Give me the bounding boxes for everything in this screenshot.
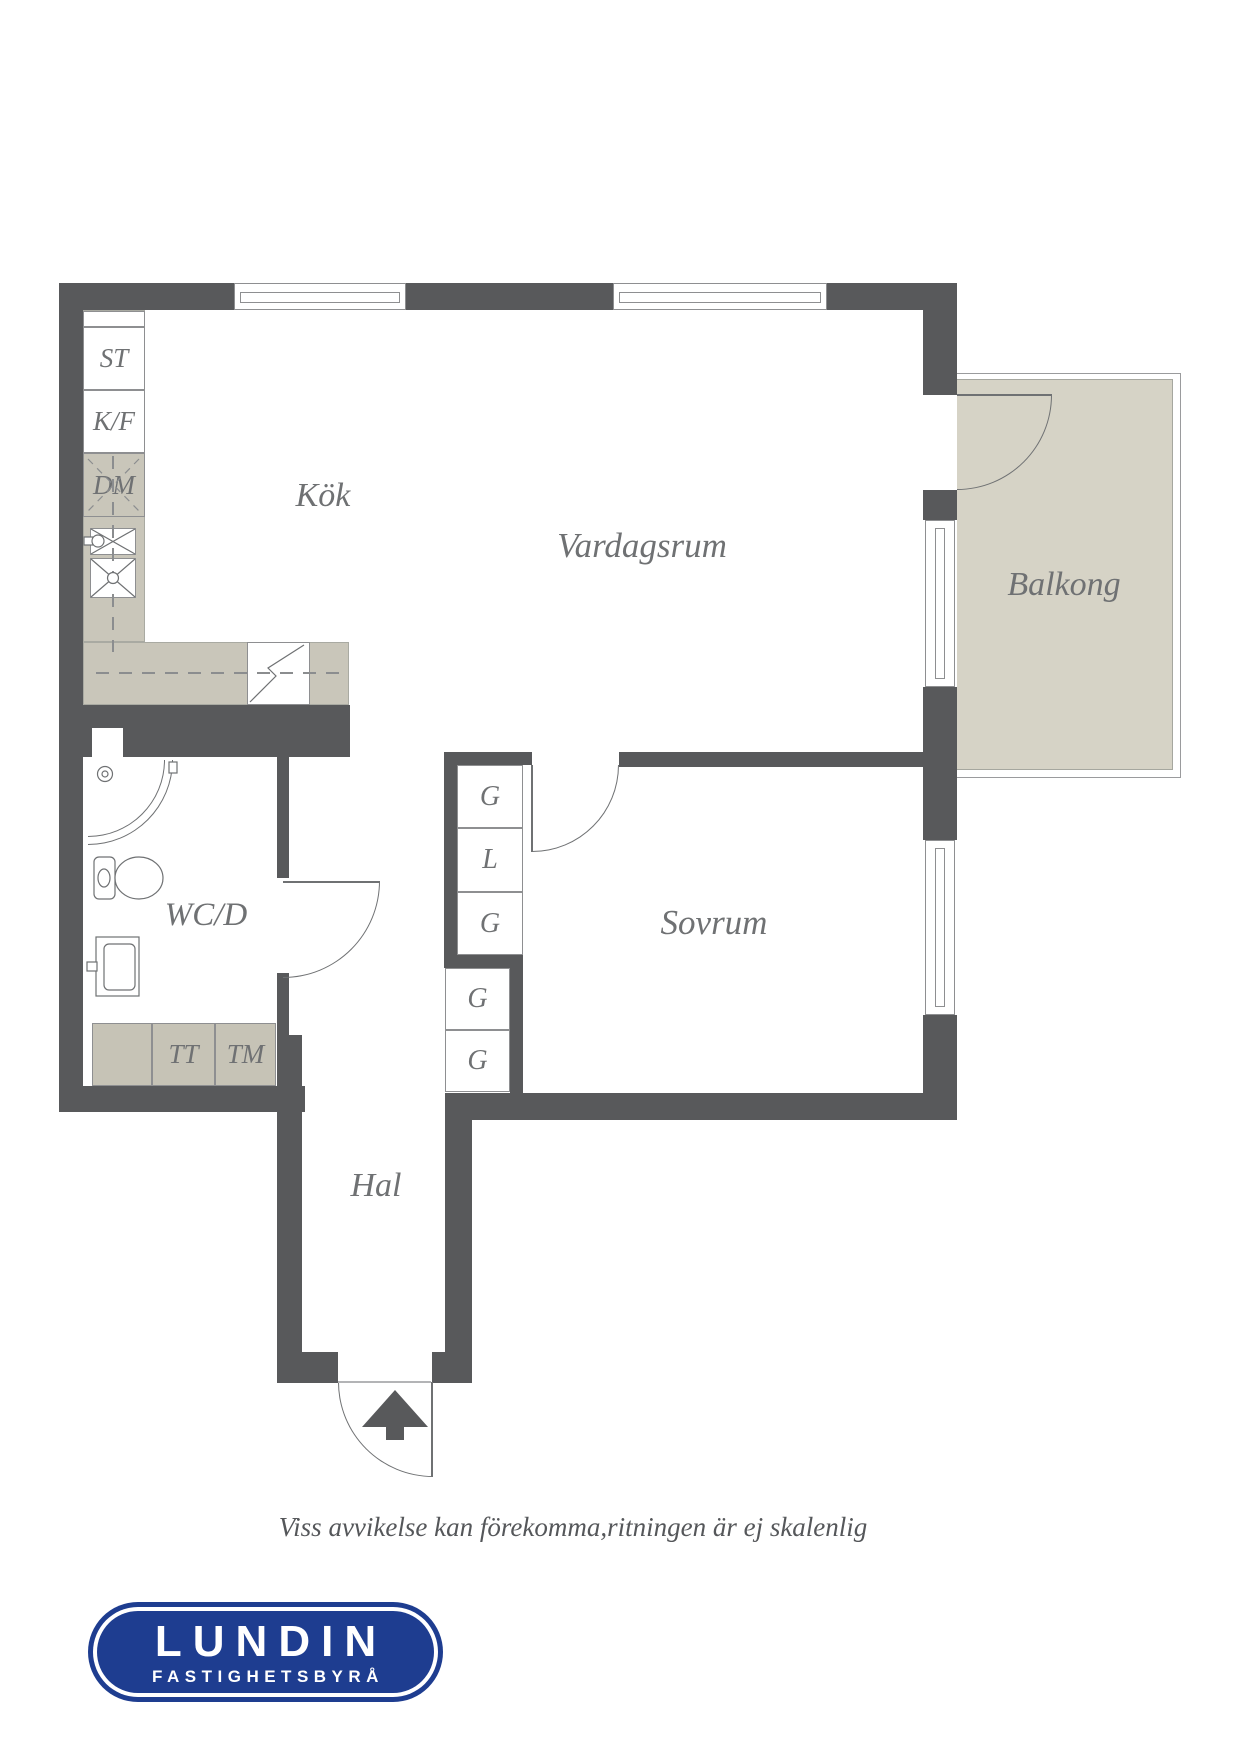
logo-body: LUNDIN FASTIGHETSBYRÅ: [97, 1611, 434, 1693]
washbasin-symbol: [87, 937, 139, 996]
shower-head: [98, 762, 178, 782]
room-label-wc: WC/D: [141, 897, 271, 934]
logo-ring: LUNDIN FASTIGHETSBYRÅ: [93, 1607, 438, 1697]
floorplan: ST K/F DM TT TM G L G G G: [0, 0, 1240, 1754]
logo-name: LUNDIN: [155, 1620, 387, 1664]
room-label-kitchen: Kök: [263, 477, 383, 515]
room-label-living: Vardagsrum: [532, 526, 752, 566]
logo-tagline: FASTIGHETSBYRÅ: [152, 1668, 384, 1685]
sink-symbols: [84, 529, 135, 597]
disclaimer-text: Viss avvikelse kan förekomma,ritningen ä…: [0, 1512, 1146, 1543]
lundin-logo: LUNDIN FASTIGHETSBYRÅ: [88, 1602, 443, 1702]
toilet-symbol: [94, 857, 163, 899]
symbol-layer: [0, 0, 1240, 1754]
room-label-hall: Hal: [316, 1167, 436, 1205]
room-label-balcony: Balkong: [958, 566, 1170, 604]
entrance-arrow-icon: [362, 1390, 428, 1440]
room-label-bedroom: Sovrum: [604, 903, 824, 943]
